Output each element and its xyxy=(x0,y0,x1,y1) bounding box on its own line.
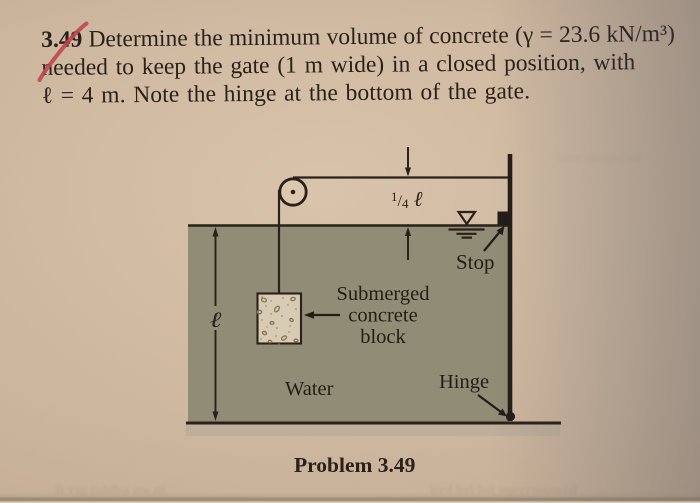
svg-text:ℓ: ℓ xyxy=(210,307,222,332)
svg-text:Hinge: Hinge xyxy=(439,371,489,393)
svg-text:concrete: concrete xyxy=(348,305,417,327)
svg-text:Stop: Stop xyxy=(456,250,495,274)
svg-text:1/4 ℓ: 1/4 ℓ xyxy=(391,187,423,211)
svg-text:Submerged: Submerged xyxy=(336,283,429,305)
svg-text:Water: Water xyxy=(285,378,334,400)
svg-text:block: block xyxy=(360,326,406,348)
